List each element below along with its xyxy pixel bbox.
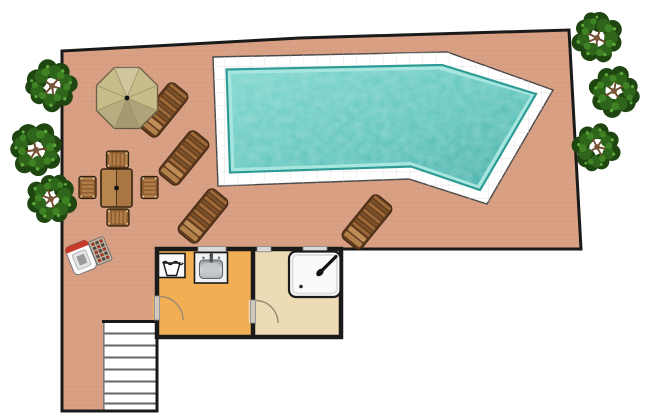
utility-room [157,249,253,337]
dining-set [79,151,158,226]
terrace [62,30,581,411]
washbasin [195,253,228,284]
stairs [102,321,157,411]
floor-plan-drawing [0,0,650,420]
tree-left-1 [25,59,77,112]
door-shower [249,300,278,323]
windows [198,246,327,251]
swimming-pool [213,52,553,204]
shower-head-icon [323,257,337,271]
dining-chair-left [79,177,96,199]
door-utility [153,296,183,320]
sun-lounger-2 [157,128,212,187]
pool-water [231,70,531,186]
shower-tray [289,252,341,298]
window-shower-right [303,246,327,251]
window-shower-left [257,246,271,251]
sun-lounger-3 [176,186,231,245]
plot-boundary-wall [62,30,581,411]
dining-table [101,169,132,207]
shower-drain [299,285,303,289]
tree-left-3 [16,163,87,234]
trees [0,6,648,234]
floor-plan-canvas [0,0,650,420]
dining-chair-bottom [107,209,129,226]
shower-room [253,249,341,337]
pool-water-band [227,65,537,190]
tree-right-3 [565,116,628,179]
sun-lounger-4 [340,192,395,251]
dining-chair-top [107,151,129,168]
walls [62,30,581,411]
tree-left-2 [0,111,75,189]
building [157,249,341,337]
window-utility [198,246,226,251]
tree-right-1 [565,6,629,70]
tree-right-2 [581,58,648,125]
dining-chair-right [141,177,158,199]
parasol [97,68,158,129]
sun-lounger-1 [136,80,191,139]
barbecue [64,233,113,276]
laundry-basket [159,254,186,278]
room-walls [157,249,341,337]
pool-deck [213,52,553,204]
